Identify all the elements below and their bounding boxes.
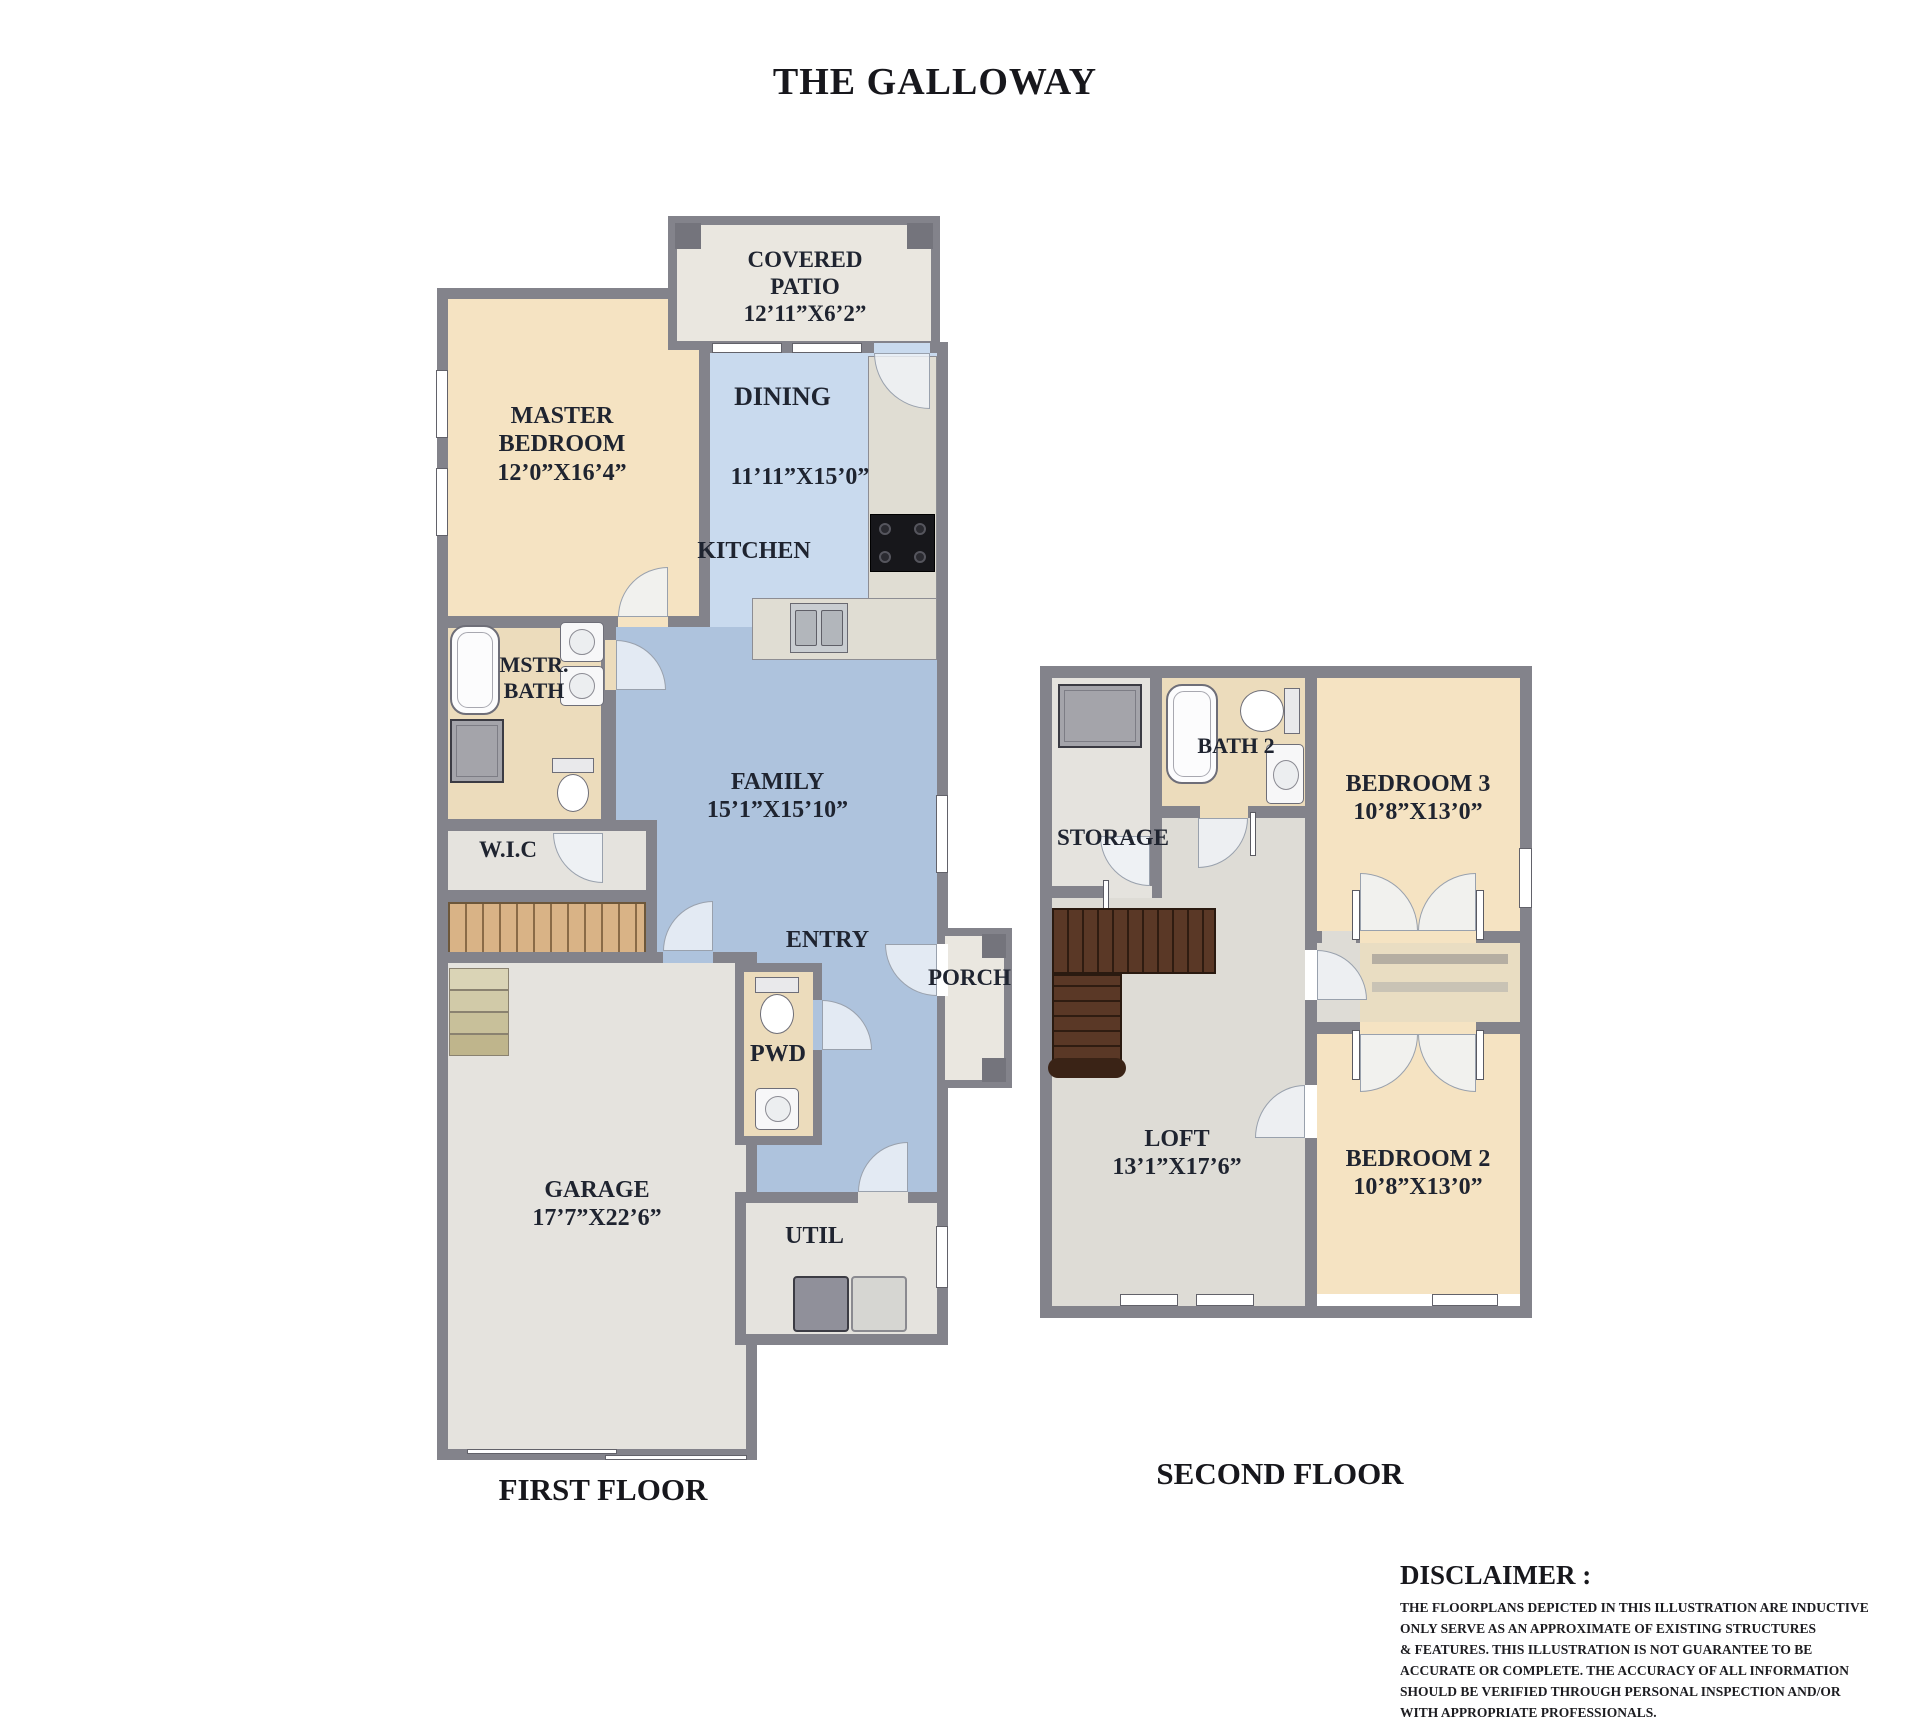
room-label-bedroom2: BEDROOM 2 10’8”X13’0” — [1318, 1145, 1518, 1202]
room-name: BEDROOM 3 — [1318, 770, 1518, 798]
second-floor-caption: SECOND FLOOR — [1130, 1456, 1430, 1492]
closet-door-frame — [1352, 1030, 1360, 1080]
disclaimer-text: THE FLOORPLANS DEPICTED IN THIS ILLUSTRA… — [1400, 1598, 1920, 1724]
disclaimer-line: WITH APPROPRIATE PROFESSIONALS. — [1400, 1703, 1920, 1724]
closet-opening — [1360, 1022, 1476, 1034]
closet-rail — [1372, 982, 1508, 992]
window — [1432, 1294, 1498, 1306]
room-label-bedroom3: BEDROOM 3 10’8”X13’0” — [1318, 770, 1518, 827]
wall-segment — [1305, 1000, 1317, 1085]
toilet — [1240, 690, 1284, 732]
shower — [1058, 684, 1142, 748]
wall-segment — [1150, 678, 1162, 898]
room-dims: 10’8”X13’0” — [1318, 798, 1518, 826]
closet-door-frame — [1476, 890, 1484, 940]
door-opening — [1322, 931, 1356, 943]
door-leaf — [1250, 812, 1256, 856]
disclaimer-line: ONLY SERVE AS AN APPROXIMATE OF EXISTING… — [1400, 1619, 1920, 1640]
disclaimer-heading: DISCLAIMER : — [1400, 1560, 1591, 1591]
closet-door-frame — [1476, 1030, 1484, 1080]
room-label-bath2: BATH 2 — [1196, 733, 1276, 759]
staircase-second-floor — [1052, 908, 1216, 974]
door-opening — [1200, 806, 1248, 818]
closet-door-frame — [1352, 890, 1360, 940]
floorplan-page: THE GALLOWAY — [0, 0, 1920, 1726]
door-opening — [1108, 886, 1152, 898]
room-name: STORAGE — [1048, 824, 1178, 851]
toilet — [1284, 688, 1300, 734]
room-label-loft: LOFT 13’1”X17’6” — [1092, 1125, 1262, 1182]
first-floor-caption: FIRST FLOOR — [453, 1472, 753, 1508]
second-floor-plan: STORAGE BATH 2 BEDROOM 3 10’8”X13’0” LOF… — [0, 0, 1920, 1726]
disclaimer-line: ACCURATE OR COMPLETE. THE ACCURACY OF AL… — [1400, 1661, 1920, 1682]
room-dims: 10’8”X13’0” — [1318, 1173, 1518, 1201]
window — [1519, 848, 1532, 908]
room-name: LOFT — [1092, 1125, 1262, 1153]
staircase-second-floor — [1052, 974, 1122, 1062]
closet-rail — [1372, 954, 1508, 964]
wall-segment — [1305, 1138, 1317, 1306]
disclaimer-line: & FEATURES. THIS ILLUSTRATION IS NOT GUA… — [1400, 1640, 1920, 1661]
wall-segment — [1305, 678, 1317, 950]
disclaimer-line: THE FLOORPLANS DEPICTED IN THIS ILLUSTRA… — [1400, 1598, 1920, 1619]
window — [1120, 1294, 1178, 1306]
room-name: BEDROOM 2 — [1318, 1145, 1518, 1173]
room-label-storage: STORAGE — [1048, 824, 1178, 851]
window — [1196, 1294, 1254, 1306]
stair-newel — [1048, 1058, 1126, 1078]
room-dims: 13’1”X17’6” — [1092, 1153, 1262, 1181]
closet-opening — [1360, 931, 1476, 943]
room-name: BATH 2 — [1196, 733, 1276, 759]
disclaimer-line: SHOULD BE VERIFIED THROUGH PERSONAL INSP… — [1400, 1682, 1920, 1703]
